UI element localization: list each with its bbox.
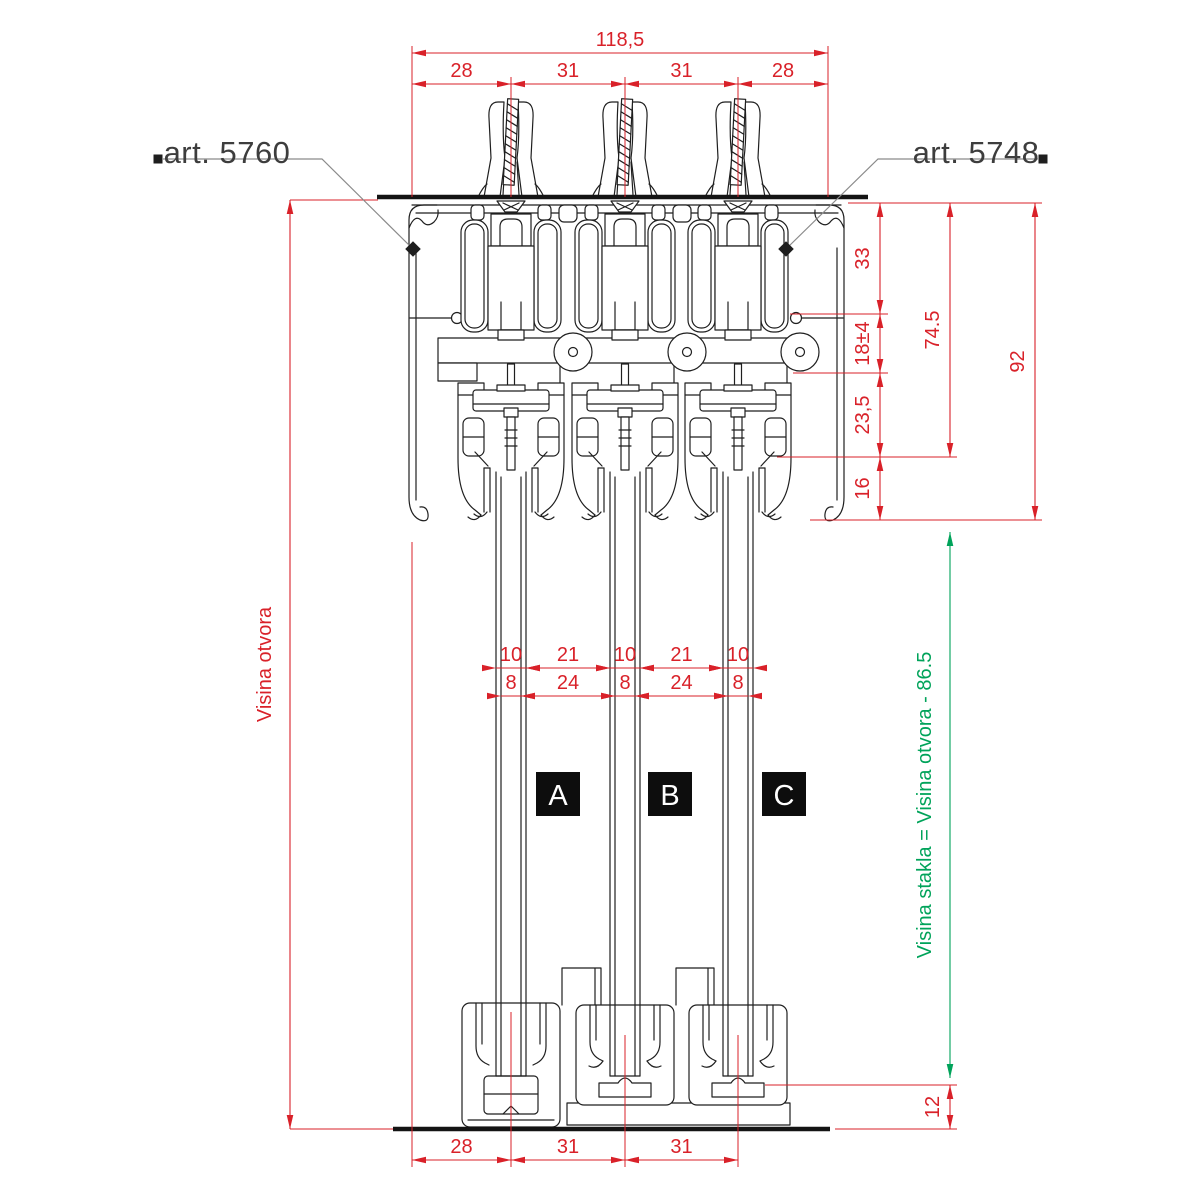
dimension-value: 12: [922, 1096, 944, 1118]
dimension-value: 8: [619, 672, 630, 694]
panel-label-a: A: [536, 772, 580, 816]
roller-carriage-a: [461, 201, 561, 340]
glass-clamp-c: [685, 364, 791, 520]
dimension-12: 12: [922, 1085, 953, 1129]
panel-label-c: C: [762, 772, 806, 816]
dimension-value: 28: [450, 1136, 472, 1158]
dimension-10: 10: [709, 644, 767, 671]
dimension-layer: 118,528313128102110211082482482831313318…: [254, 29, 1042, 1167]
dimension-8: 8: [714, 672, 762, 699]
dimension-value: 23,5: [852, 396, 874, 435]
dimension-Visina otvora: Visina otvora: [254, 200, 293, 1129]
profile-geometry: [377, 99, 868, 1129]
dimension-value: Visina otvora: [254, 606, 276, 722]
dimension-31: 31: [511, 60, 625, 87]
article-label-right: art. 5748: [913, 135, 1040, 170]
dimension-value: 31: [670, 60, 692, 82]
panel-label-text: C: [774, 780, 795, 812]
panel-label-text: A: [548, 780, 568, 812]
dimension-value: 24: [670, 672, 692, 694]
dimension-value: 10: [727, 644, 749, 666]
dimension-value: 18±4: [852, 321, 874, 365]
dimension-value: 16: [852, 477, 874, 499]
dimension-value: 21: [557, 644, 579, 666]
dimension-value: 10: [614, 644, 636, 666]
dimension-28: 28: [412, 60, 511, 87]
dimension-value: 33: [852, 247, 874, 269]
dimension-118,5: 118,5: [412, 29, 828, 56]
dimension-value: 28: [450, 60, 472, 82]
glass-panel-a: [496, 472, 526, 1076]
dimension-value: 74.5: [922, 311, 944, 350]
article-label-left: art. 5760: [164, 135, 291, 170]
panel-label-b: B: [648, 772, 692, 816]
dimension-31: 31: [625, 1136, 738, 1163]
dimension-23,5: 23,5: [852, 373, 883, 457]
glass-panel-c: [723, 472, 753, 1076]
glass-clamp-a: [458, 364, 564, 520]
roller-carriage-c: [688, 201, 788, 340]
sliding-door-section-drawing: 118,528313128102110211082482482831313318…: [0, 0, 1200, 1200]
dimension-value: 28: [772, 60, 794, 82]
glass-panel-b: [610, 472, 640, 1076]
dimension-74.5: 74.5: [922, 203, 953, 457]
glass-clamp-b: [572, 364, 678, 520]
dimension-16: 16: [852, 457, 883, 520]
dimension-value: 31: [557, 60, 579, 82]
dimension-Visina stakla = Visina otvora - 86.5: Visina stakla = Visina otvora - 86.5: [914, 532, 953, 1078]
dimension-value: 8: [732, 672, 743, 694]
dimension-value: 21: [670, 644, 692, 666]
dimension-31: 31: [625, 60, 738, 87]
technical-drawing-page: 118,528313128102110211082482482831313318…: [0, 0, 1200, 1200]
dimension-value: 24: [557, 672, 579, 694]
dimension-value: 10: [500, 644, 522, 666]
dimension-92: 92: [1007, 203, 1038, 520]
dimension-31: 31: [511, 1136, 625, 1163]
dimension-value: 8: [505, 672, 516, 694]
dimension-28: 28: [412, 1136, 511, 1163]
leader-square-marker: [154, 155, 163, 164]
dimension-value: 31: [670, 1136, 692, 1158]
roller-carriage-b: [575, 201, 675, 340]
dimension-value: 31: [557, 1136, 579, 1158]
panel-label-text: B: [660, 780, 679, 812]
dimension-value: Visina stakla = Visina otvora - 86.5: [914, 652, 936, 959]
dimension-33: 33: [852, 203, 883, 314]
dimension-24: 24: [521, 672, 615, 699]
dimension-18±4: 18±4: [852, 314, 883, 373]
dimension-value: 92: [1007, 350, 1029, 372]
dimension-value: 118,5: [596, 29, 645, 51]
dimension-28: 28: [738, 60, 828, 87]
leader-square-marker: [1039, 155, 1048, 164]
